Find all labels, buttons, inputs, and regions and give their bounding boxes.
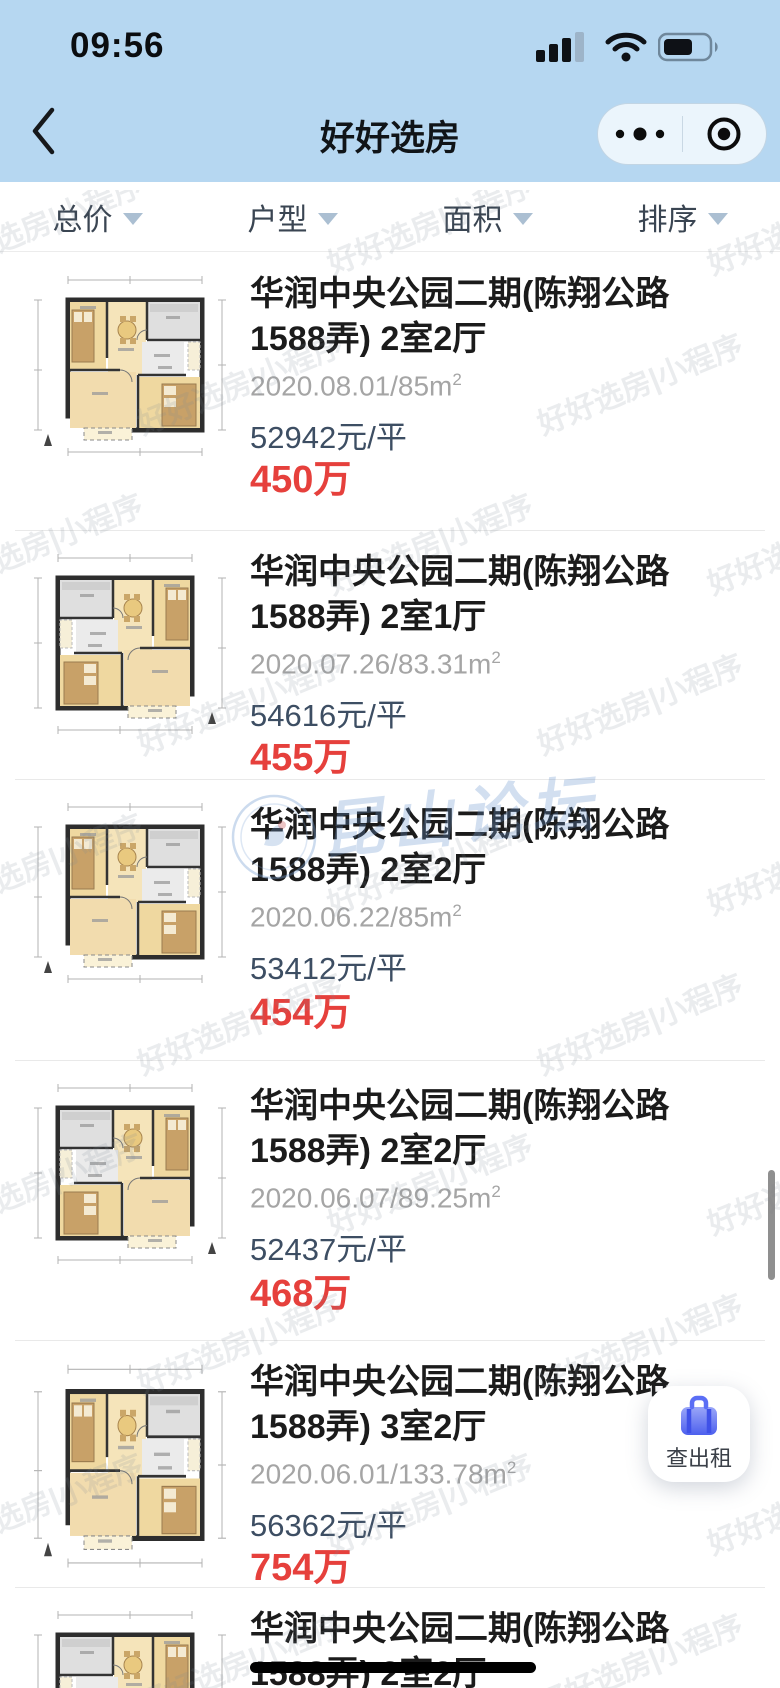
listing-title-line1: 华润中央公园二期(陈翔公路	[250, 1084, 740, 1129]
filter-label: 总价	[53, 195, 113, 239]
cellular-signal-icon	[536, 30, 594, 64]
listing-title-line2: 1588弄) 2室2厅	[250, 317, 740, 362]
status-icons	[536, 30, 722, 64]
caret-down-icon	[513, 213, 533, 225]
list-divider	[15, 1340, 765, 1341]
filter-label: 面积	[443, 195, 503, 239]
listing-date-area: 2020.08.01/85m2	[250, 370, 462, 402]
miniprogram-capsule	[597, 103, 767, 165]
floorplan-image	[30, 548, 230, 738]
target-circle-icon	[704, 114, 744, 154]
listing-item[interactable]: 华润中央公园二期(陈翔公路 1588弄) 2室2厅 2020.06.07/89.…	[0, 1060, 780, 1340]
caret-down-icon	[708, 213, 728, 225]
ellipsis-icon	[612, 124, 668, 144]
list-divider	[15, 530, 765, 531]
filter-label: 排序	[638, 195, 698, 239]
listing-title-line1: 华润中央公园二期(陈翔公路	[250, 272, 740, 317]
floorplan-image	[30, 1358, 230, 1572]
listing-title-line1: 华润中央公园二期(陈翔公路	[250, 550, 740, 595]
listing-title-line2: 1588弄) 2室1厅	[250, 595, 740, 640]
filter-layout[interactable]: 户型	[195, 182, 390, 251]
caret-down-icon	[318, 213, 338, 225]
filter-label: 户型	[248, 195, 308, 239]
battery-icon	[658, 31, 722, 63]
listing-date-area: 2020.06.22/85m2	[250, 901, 462, 933]
listing-total-price: 754万	[250, 1536, 351, 1591]
floorplan-image	[30, 797, 230, 987]
listing-total-price: 454万	[250, 981, 351, 1036]
listing-title-line1: 华润中央公园二期(陈翔公路	[250, 803, 740, 848]
list-divider	[15, 1060, 765, 1061]
floorplan-image	[30, 270, 230, 460]
listing-total-price: 468万	[250, 1262, 351, 1317]
check-rentals-label: 查出租	[666, 1441, 732, 1473]
listing-item[interactable]: 华润中央公园二期(陈翔公路 1588弄) 2室1厅 2020.07.26/83.…	[0, 530, 780, 779]
list-divider	[15, 1587, 765, 1588]
list-divider	[15, 779, 765, 780]
listing-item[interactable]: 华润中央公园二期(陈翔公路 1588弄) 2室2厅 2020.08.01/85m…	[0, 252, 780, 530]
listing-title-line2: 1588弄) 2室2厅	[250, 848, 740, 893]
listing-item[interactable]: 华润中央公园二期(陈翔公路 1588弄) 2室2厅 2020.06.22/85m…	[0, 779, 780, 1060]
floorplan-image	[30, 1078, 230, 1268]
listing-title-line2: 1588弄) 2室2厅	[250, 1129, 740, 1174]
check-rentals-button[interactable]: 查出租	[648, 1386, 750, 1482]
listing-total-price: 450万	[250, 448, 351, 503]
listing-total-price: 455万	[250, 726, 351, 781]
listing-title-line1: 华润中央公园二期(陈翔公路	[250, 1607, 740, 1652]
app-header: 09:56 好好选房	[0, 0, 780, 182]
listing-date-area: 2020.06.07/89.25m2	[250, 1182, 501, 1214]
minimize-button[interactable]	[683, 104, 767, 164]
scrollbar-thumb[interactable]	[768, 1170, 775, 1280]
home-indicator[interactable]	[250, 1662, 536, 1673]
menu-button[interactable]	[598, 104, 682, 164]
filter-sort[interactable]: 排序	[585, 182, 780, 251]
floorplan-image	[30, 1605, 230, 1688]
wifi-icon	[604, 30, 648, 64]
status-time: 09:56	[70, 26, 165, 66]
listing-date-area: 2020.06.01/133.78m2	[250, 1458, 516, 1490]
filter-bar: 总价 户型 面积 排序	[0, 182, 780, 252]
caret-down-icon	[123, 213, 143, 225]
listing-date-area: 2020.07.26/83.31m2	[250, 648, 501, 680]
suitcase-icon	[676, 1395, 722, 1437]
filter-area[interactable]: 面积	[390, 182, 585, 251]
filter-total-price[interactable]: 总价	[0, 182, 195, 251]
